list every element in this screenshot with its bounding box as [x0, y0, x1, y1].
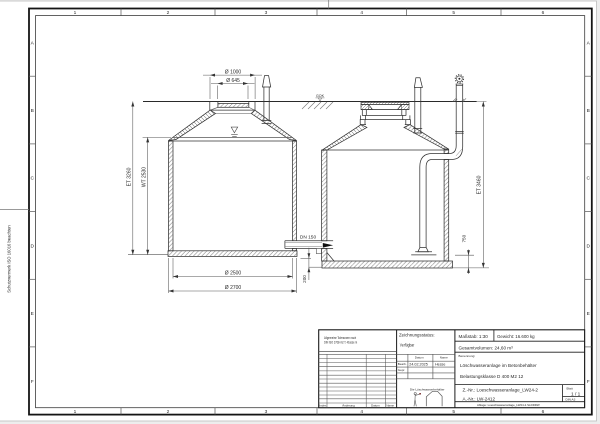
svg-text:Benennung:: Benennung:: [459, 354, 476, 358]
svg-text:Z.-Nr.: Loeschwasseranlage_LW2: Z.-Nr.: Loeschwasseranlage_LW24-2: [463, 388, 539, 393]
svg-text:Belastungsklasse D 400 M2 12: Belastungsklasse D 400 M2 12: [460, 374, 524, 379]
svg-text:5: 5: [452, 10, 455, 16]
svg-text:ET 3260: ET 3260: [127, 167, 133, 186]
svg-text:Ø 1000: Ø 1000: [225, 69, 242, 75]
svg-text:C: C: [586, 176, 590, 182]
svg-text:Datum: Datum: [415, 355, 424, 359]
svg-text:4: 4: [360, 10, 363, 16]
svg-text:2: 2: [167, 10, 170, 16]
svg-text:Datum: Datum: [371, 404, 380, 408]
svg-text:Name: Name: [440, 355, 448, 359]
svg-text:Gewicht: 16.600 kg: Gewicht: 16.600 kg: [497, 334, 535, 339]
svg-text:Zeichnungsstatus:: Zeichnungsstatus:: [399, 333, 435, 338]
svg-text:4: 4: [360, 409, 363, 415]
svg-text:ET 3460: ET 3460: [477, 175, 483, 194]
svg-text:200: 200: [302, 275, 307, 283]
svg-text:1 / 1: 1 / 1: [571, 391, 581, 397]
svg-text:B: B: [31, 108, 34, 114]
svg-text:Ø 2700: Ø 2700: [225, 285, 242, 291]
svg-text:2: 2: [167, 409, 170, 415]
svg-text:6: 6: [542, 409, 545, 415]
svg-text:E: E: [587, 311, 590, 317]
svg-text:3: 3: [265, 409, 268, 415]
svg-text:Änderung: Änderung: [342, 404, 355, 408]
svg-text:DN 150: DN 150: [300, 235, 317, 241]
svg-text:750: 750: [461, 234, 466, 242]
svg-text:1: 1: [74, 409, 77, 415]
svg-text:Verfügbar: Verfügbar: [400, 342, 415, 347]
svg-text:Die Löschwasserbehälter: Die Löschwasserbehälter: [410, 388, 445, 392]
svg-text:1: 1: [74, 10, 77, 16]
svg-text:Blatt: Blatt: [567, 386, 573, 390]
svg-text:Ø 2500: Ø 2500: [225, 271, 242, 277]
svg-text:F: F: [31, 379, 34, 385]
svg-text:GOK: GOK: [316, 94, 325, 98]
svg-text:DIN ISO 2768-m2 T.-Klasse m: DIN ISO 2768-m2 T.-Klasse m: [324, 340, 357, 344]
svg-text:Ablage: Loeschwasseranlage_LW2: Ablage: Loeschwasseranlage_LW24-2.SLDDRW: [477, 403, 540, 407]
svg-text:Schutzvermerk ISO 16016 beacht: Schutzvermerk ISO 16016 beachten: [7, 225, 12, 293]
svg-text:Name: Name: [386, 404, 394, 408]
svg-text:D: D: [30, 243, 34, 249]
svg-text:Gesamtvolumen: 24,60 m³: Gesamtvolumen: 24,60 m³: [459, 345, 514, 350]
svg-text:D: D: [586, 243, 590, 249]
svg-text:6: 6: [542, 10, 545, 16]
svg-text:C: C: [30, 176, 34, 182]
svg-text:5: 5: [452, 409, 455, 415]
svg-text:A.-Nr.: LW-2412: A.-Nr.: LW-2412: [463, 397, 496, 402]
svg-text:DIN A3: DIN A3: [566, 398, 576, 402]
svg-text:Allgemeine Toleranzen nach: Allgemeine Toleranzen nach: [324, 336, 356, 340]
svg-text:Löschwasseranlage im Betonbehä: Löschwasseranlage im Betonbehälter: [460, 363, 537, 368]
svg-text:3: 3: [265, 10, 268, 16]
svg-text:B: B: [587, 108, 590, 114]
svg-text:F: F: [587, 379, 590, 385]
svg-text:Gepr.: Gepr.: [398, 368, 406, 372]
svg-text:WT 2530: WT 2530: [141, 167, 147, 187]
svg-text:E: E: [31, 311, 34, 317]
svg-text:Ø 645: Ø 645: [226, 78, 240, 84]
svg-text:Maßstab: 1:30: Maßstab: 1:30: [459, 334, 489, 339]
svg-text:24.02.2025: 24.02.2025: [409, 362, 427, 366]
svg-text:Index: Index: [319, 404, 327, 408]
svg-text:Hesse: Hesse: [435, 362, 445, 366]
svg-text:Bearb.: Bearb.: [398, 362, 407, 366]
